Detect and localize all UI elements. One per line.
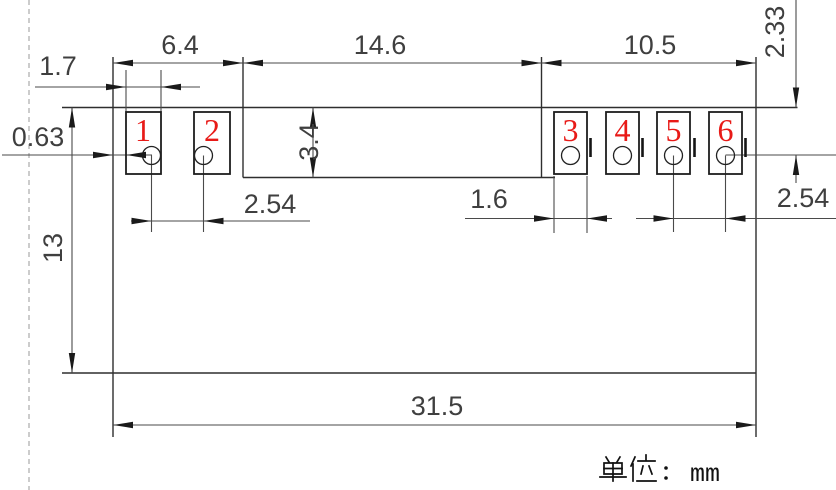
arrow-14.6-right <box>522 60 542 66</box>
arrow-2.54R-left <box>654 215 674 221</box>
pad-4: 4 <box>606 112 639 174</box>
dim-top-to-hole-text: 2.33 <box>760 6 790 59</box>
dim-left-pitch: 2.54 <box>131 189 310 224</box>
dim-left-pad-width-text: 1.7 <box>39 51 77 81</box>
unit-label-hanzi <box>600 455 668 481</box>
technical-drawing-page: 1 2 3 4 5 6 6.4 1 <box>0 0 836 490</box>
arrow-1.6-left <box>534 215 554 221</box>
hanzi-stroke <box>649 466 652 474</box>
dim-notch-height: 3.4 <box>294 108 324 178</box>
arrow-1.7-right <box>161 84 181 90</box>
pad-6-number: 6 <box>718 112 734 148</box>
dim-top-widths: 6.4 14.6 10.5 <box>113 30 756 66</box>
arrow-0.63-right <box>126 152 146 158</box>
arrow-1.6-right <box>587 215 607 221</box>
pad-5-number: 5 <box>666 112 682 148</box>
arrow-6.4-left <box>113 60 133 66</box>
dim-left-pitch-text: 2.54 <box>244 189 297 219</box>
colon-dot <box>664 476 668 480</box>
arrow-2.33-top <box>793 88 799 108</box>
dim-overall-width-text: 31.5 <box>411 391 464 421</box>
dim-pad-group-left-width: 6.4 <box>161 30 199 60</box>
dim-body-height-text: 13 <box>38 233 68 263</box>
dim-right-group: 1.6 2.54 <box>465 183 836 222</box>
unit-value: mm <box>690 460 720 489</box>
arrow-0.63-left <box>93 152 113 158</box>
dim-edge-offset-text: 0.63 <box>12 122 65 152</box>
arrow-2.54L-right <box>204 218 224 224</box>
pad-1-number: 1 <box>135 112 151 148</box>
arrow-10.5-left <box>542 60 562 66</box>
dim-body-middle-width: 14.6 <box>354 30 407 60</box>
arrow-2.54R-right <box>726 215 746 221</box>
footprint-dimension-drawing: 1 2 3 4 5 6 6.4 1 <box>0 0 836 490</box>
hanzi-stroke <box>617 457 620 462</box>
pad-2-number: 2 <box>204 112 220 148</box>
arrow-2.33-bottom <box>793 155 799 175</box>
component-outline <box>62 57 798 437</box>
dim-overall-width: 31.5 <box>113 391 756 428</box>
arrow-31.5-left <box>113 422 133 428</box>
pad-5: 5 <box>657 112 690 174</box>
colon-dot <box>664 466 668 470</box>
dim-notch-height-text: 3.4 <box>294 123 324 161</box>
hanzi-stroke <box>606 457 609 462</box>
pad-4-hole <box>614 147 632 165</box>
pad-3: 3 <box>554 112 587 174</box>
arrow-14.6-left <box>243 60 263 66</box>
arrow-1.7-left <box>106 84 126 90</box>
arrow-13-bottom <box>69 353 75 373</box>
pad-2: 2 <box>194 112 230 174</box>
pad-1: 1 <box>126 112 161 174</box>
dim-pad-group-right-width: 10.5 <box>624 30 677 60</box>
arrow-6.4-right <box>223 60 243 66</box>
arrow-13-top <box>69 108 75 128</box>
pad-3-hole <box>562 147 580 165</box>
arrow-10.5-right <box>736 60 756 66</box>
arrow-31.5-right <box>736 422 756 428</box>
dim-right-pitch-text: 2.54 <box>777 183 830 213</box>
hanzi-stroke <box>641 466 643 474</box>
pad-6: 6 <box>709 112 742 174</box>
pad-3-number: 3 <box>563 112 579 148</box>
pad-4-number: 4 <box>615 112 631 148</box>
dim-right-pad-width-text: 1.6 <box>470 184 508 214</box>
arrow-2.54L-left <box>132 218 152 224</box>
unit-note: mm <box>600 455 720 489</box>
